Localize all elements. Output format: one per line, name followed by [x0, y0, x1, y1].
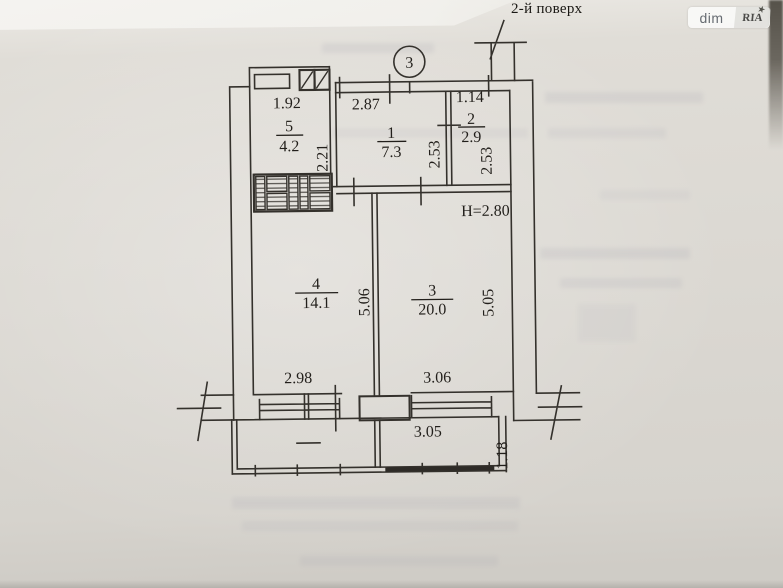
dim-room4-width: 2.98 [284, 370, 312, 387]
balcony-door-sill [359, 396, 409, 421]
dim-balcony-depth: 1.18 [494, 442, 511, 470]
scanned-floor-plan-photo: 2-й поверх dim RIA ★ [0, 0, 783, 588]
balcony-glazing-dark-rail [387, 468, 492, 469]
room-area: 4.2 [279, 138, 299, 155]
room-number: 4 [312, 276, 320, 293]
dim-balcony-width: 3.05 [414, 423, 442, 440]
dim-room3-width: 3.06 [423, 369, 451, 386]
axis-marker-number: 3 [405, 55, 413, 72]
dim-wc-width: 1.14 [456, 89, 484, 106]
dim-room5-width: 1.92 [273, 95, 301, 112]
floor-plan-drawing: 3 1.92 2.87 1.14 2.98 3.06 3.05 H=2.80 2… [0, 0, 783, 588]
dim-hall-width: 2.87 [352, 96, 380, 113]
door-openings [354, 178, 421, 206]
window-room3 [411, 395, 491, 418]
walls-outline [197, 43, 580, 425]
room-number: 3 [428, 282, 436, 299]
ceiling-height-label: H=2.80 [461, 203, 510, 221]
vent-shafts [299, 70, 329, 90]
dimension-tick [335, 386, 336, 431]
room-number: 2 [467, 111, 475, 128]
wardrobe-hatched [254, 174, 332, 212]
balcony [232, 417, 507, 476]
room-number: 1 [387, 125, 395, 142]
dim-wc-depth: 2.53 [478, 147, 495, 175]
room-label-2: 2 2.9 [458, 111, 485, 146]
window-room4 [259, 394, 339, 420]
dim-hall-depth: 2.53 [426, 140, 443, 168]
room-label-5: 5 4.2 [276, 118, 303, 155]
dim-room3-depth: 5.05 [480, 289, 497, 317]
room-label-4: 4 14.1 [295, 276, 338, 313]
room-area: 7.3 [381, 144, 401, 161]
room-label-1: 1 7.3 [377, 125, 406, 161]
mezzanine-shelf [254, 74, 289, 88]
room-area: 20.0 [418, 301, 446, 318]
dim-room5-depth: 2.21 [314, 144, 331, 172]
room-label-3: 3 20.0 [411, 282, 453, 319]
room-area: 2.9 [461, 129, 481, 146]
room-area: 14.1 [302, 295, 330, 312]
dim-room4-depth: 5.06 [356, 288, 373, 316]
room-number: 5 [285, 118, 293, 135]
